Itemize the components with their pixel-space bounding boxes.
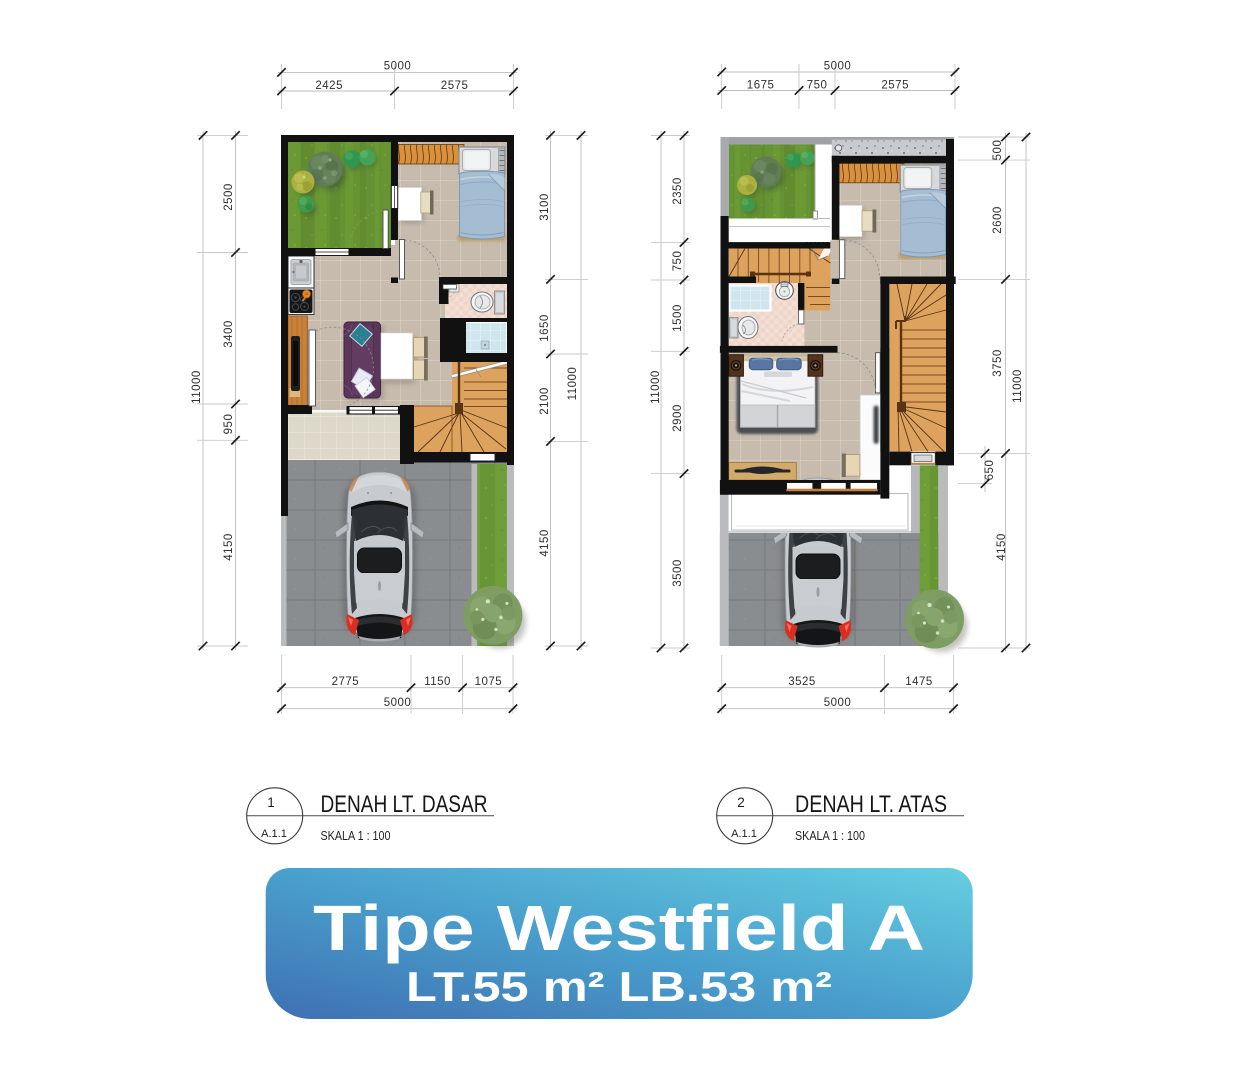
svg-text:750: 750 xyxy=(672,251,684,272)
svg-text:11000: 11000 xyxy=(567,367,579,401)
svg-text:3100: 3100 xyxy=(539,193,551,221)
svg-text:SKALA 1 : 100: SKALA 1 : 100 xyxy=(795,829,865,843)
svg-text:2900: 2900 xyxy=(672,404,684,432)
svg-text:DENAH LT. ATAS: DENAH LT. ATAS xyxy=(795,791,947,818)
svg-text:LT.55 m² LB.53 m²: LT.55 m² LB.53 m² xyxy=(406,963,832,1010)
svg-text:4150: 4150 xyxy=(539,529,551,557)
svg-text:4150: 4150 xyxy=(996,533,1008,561)
svg-text:4150: 4150 xyxy=(223,533,235,561)
svg-text:Tipe Westfield A: Tipe Westfield A xyxy=(313,892,925,964)
svg-text:950: 950 xyxy=(223,414,235,435)
svg-text:2425: 2425 xyxy=(315,80,343,92)
svg-text:2: 2 xyxy=(737,795,745,810)
svg-text:1500: 1500 xyxy=(672,304,684,332)
svg-text:1150: 1150 xyxy=(424,676,451,688)
svg-text:2600: 2600 xyxy=(992,206,1004,234)
svg-text:1675: 1675 xyxy=(747,80,775,92)
svg-text:5000: 5000 xyxy=(824,61,852,73)
svg-text:A.1.1: A.1.1 xyxy=(261,828,287,840)
svg-text:2350: 2350 xyxy=(672,177,684,205)
svg-text:DENAH LT. DASAR: DENAH LT. DASAR xyxy=(321,791,488,818)
svg-text:SKALA 1 : 100: SKALA 1 : 100 xyxy=(321,829,391,843)
svg-text:1075: 1075 xyxy=(475,676,503,688)
svg-text:11000: 11000 xyxy=(191,370,203,404)
svg-text:750: 750 xyxy=(807,80,828,92)
svg-text:1: 1 xyxy=(267,795,275,810)
svg-text:2575: 2575 xyxy=(441,80,469,92)
svg-text:2100: 2100 xyxy=(539,387,551,415)
svg-text:11000: 11000 xyxy=(650,370,662,404)
svg-text:5000: 5000 xyxy=(824,697,852,709)
svg-text:2775: 2775 xyxy=(332,676,360,688)
svg-text:500: 500 xyxy=(992,140,1004,161)
svg-text:3500: 3500 xyxy=(672,559,684,587)
svg-text:650: 650 xyxy=(984,460,996,481)
svg-text:1650: 1650 xyxy=(539,314,551,342)
svg-text:3750: 3750 xyxy=(992,349,1004,377)
svg-text:A.1.1: A.1.1 xyxy=(731,828,757,840)
svg-text:1475: 1475 xyxy=(905,676,933,688)
svg-text:2575: 2575 xyxy=(881,80,909,92)
svg-text:5000: 5000 xyxy=(384,61,412,73)
svg-text:2500: 2500 xyxy=(223,183,235,211)
svg-text:5000: 5000 xyxy=(384,697,412,709)
svg-text:11000: 11000 xyxy=(1012,369,1024,403)
svg-text:3400: 3400 xyxy=(223,320,235,348)
svg-text:3525: 3525 xyxy=(788,676,816,688)
